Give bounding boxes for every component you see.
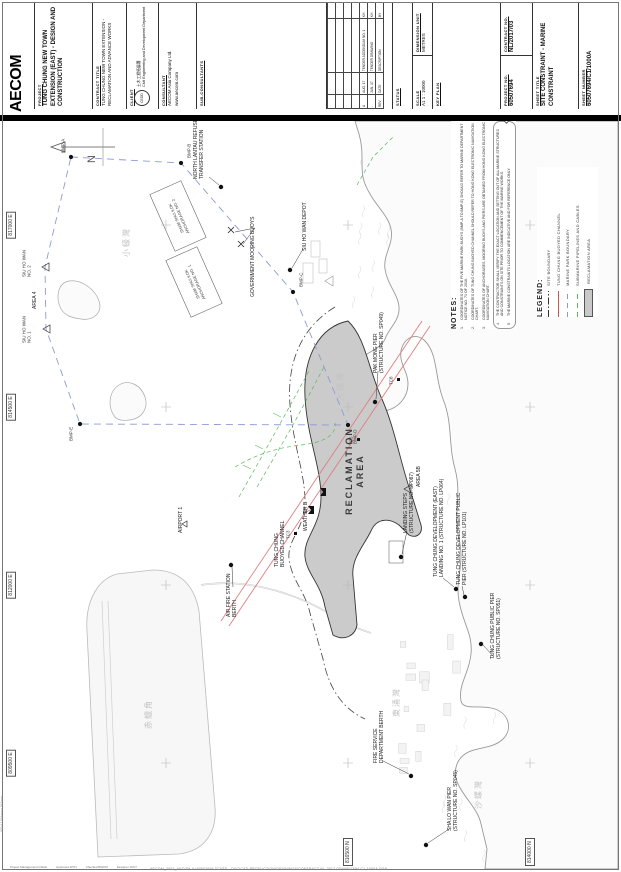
- legend-symbol-red: [558, 291, 559, 317]
- legend-symbol-dashdot: [548, 291, 549, 317]
- aecom-logo: AECOM: [0, 0, 26, 115]
- contract-no-value: NL/2017/03: [509, 5, 517, 52]
- section-consultant: CONSULTANT AECOM Asia Company Ltd. www.a…: [158, 2, 196, 109]
- sheet-title-label: SHEET TITLE: [535, 5, 540, 106]
- scale-label: SCALE: [415, 59, 420, 106]
- legend-symbol-green: [577, 291, 578, 317]
- consultant-value: AECOM Asia Company Ltd.: [167, 5, 173, 106]
- status-label: STATUS: [395, 5, 400, 106]
- project-label: PROJECT: [37, 5, 42, 106]
- label-marker-tc3: TC3: [285, 530, 290, 539]
- cedd-logo: CEDD: [134, 90, 150, 106]
- project-value: TUNG CHUNG NEW TOWN EXTENSION (EAST) - D…: [43, 5, 66, 106]
- grid-label-easting: 809500 E: [6, 749, 16, 776]
- consultant-url: www.aecom.com: [174, 5, 180, 106]
- grid-label-easting: 812000 E: [6, 571, 16, 598]
- grid-label-easting: 817000 E: [6, 211, 16, 238]
- label-area-4: AREA 4: [32, 291, 38, 309]
- label-pak-mong-pier: PAK MONG PIER (STRUCTURE NO. SP049): [373, 312, 385, 373]
- note-item: 4.THE CONTRACTOR SHALL VERIFY THE EXACT …: [496, 125, 505, 325]
- label-marker-tc5: TC5: [348, 436, 353, 445]
- section-project: PROJECT TUNG CHUNG NEW TOWN EXTENSION (E…: [34, 2, 92, 109]
- label-siu-ho-wan-depot: SIU HO WAN DEPOT: [302, 202, 308, 251]
- legend-item: SUBMARINE PIPELINES AND CABLES: [575, 167, 580, 317]
- pipeline-ticks: [243, 413, 281, 469]
- contract-title-label: CONTRACT TITLE: [95, 5, 100, 106]
- note-item: 2.COORDINATES OF TUNG CHUNG BUOYED CHANN…: [471, 121, 480, 329]
- label-siu-ho-wan-cn: 小蠔灣: [122, 227, 132, 257]
- contract-title-value: TUNG CHUNG NEW TOWN EXTENSION - RECLAMAT…: [101, 5, 113, 106]
- label-tung-chung-buoyed-channel: TUNG CHUNG BUOYED CHANNEL: [274, 521, 286, 567]
- legend-heading: LEGEND:: [537, 167, 544, 317]
- label-landing-steps: LANDING STEPS (STRUCTURE NO. SP087): [403, 472, 415, 533]
- label-government-mooring-buoys: GOVERNMENT MOORING BUOYS: [250, 217, 256, 297]
- section-numbers: PROJECT NO. 60507694 CONTRACT NO. NL/201…: [500, 2, 532, 109]
- section-status: STATUS: [392, 2, 412, 109]
- revision-table: AAUG. 17TENDER ADDENDUM NO. 1KH-JUN. 17T…: [327, 2, 384, 109]
- section-revisions: AAUG. 17TENDER ADDENDUM NO. 1KH-JUN. 17T…: [326, 2, 392, 109]
- label-buoy-bmp-a: BMP-A: [60, 139, 65, 153]
- approval-stamp: Project Management Initials: [10, 865, 47, 869]
- seawall-structure: [389, 541, 403, 563]
- legend-item: TUNG CHUNG BUOYED CHANNEL: [556, 167, 561, 317]
- label-tung-chung-wan-cn: 東涌灣: [392, 687, 402, 717]
- section-sheet-number: SHEET NUMBER 60507694/C1/1000A: [578, 2, 618, 109]
- drawing-sheet: N NORTH LANTAU REFUSE TRANSFER STATIONGO…: [0, 0, 621, 872]
- svg-text:N: N: [86, 155, 98, 163]
- section-sheet-title: SHEET TITLE SITE CONSTRAINT - MARINE CON…: [532, 2, 578, 109]
- notes-block: NOTES: 1.COORDINATES OF THE FIVE MARINE …: [451, 121, 516, 329]
- legend-item: MARINE PARK BOUNDARY: [565, 167, 570, 317]
- approvals-row: Project Management InitialsApproved WYNC…: [10, 865, 137, 869]
- note-item: 5.THE MARINE CONSTRAINTS LOCATION ARE IN…: [507, 125, 511, 325]
- approval-stamp: Designer JKKT: [117, 865, 137, 869]
- label-buoy-bmp-e: BMP-E: [68, 427, 73, 441]
- grid-label-easting: 814500 E: [6, 393, 16, 420]
- label-siu-ho-wan-intake-2: SIU HO WAN NO. 2: [22, 250, 33, 277]
- project-no-value: 60507694: [509, 59, 517, 106]
- sheet-number-value: 60507694/C1/1000A: [587, 5, 595, 106]
- scale-value: A1 1 : 10000: [421, 59, 427, 106]
- legend-item: RECLAMATION AREA: [584, 167, 593, 317]
- legend-list: SITE BOUNDARYTUNG CHUNG BUOYED CHANNELMA…: [546, 167, 593, 317]
- rotated-sheet: N NORTH LANTAU REFUSE TRANSFER STATIONGO…: [0, 0, 621, 872]
- key-plan-label: KEY PLAN: [435, 5, 440, 106]
- notes-heading: NOTES:: [451, 121, 458, 329]
- grid-label-northing: 814000 N: [525, 838, 535, 866]
- sheet-number-label: SHEET NUMBER: [581, 5, 586, 106]
- legend-item: SITE BOUNDARY: [546, 167, 551, 317]
- section-scale-unit: SCALE A1 1 : 10000 DIMENSION UNIT METRES: [412, 2, 432, 109]
- sub-consultants-label: SUB-CONSULTANTS: [199, 5, 204, 106]
- label-sha-lo-wan-pier: SHA LO WAN PIER (STRUCTURE NO. SP045): [447, 770, 459, 831]
- note-item: 3.COORDINATES OF ANCHORAGES, MOORING BUO…: [482, 121, 491, 329]
- note-item: 1.COORDINATES OF THE FIVE MARINE PARK BU…: [460, 121, 469, 329]
- sheet-title-value: SITE CONSTRAINT - MARINE CONSTRAINT: [541, 5, 556, 106]
- section-contract-title: CONTRACT TITLE TUNG CHUNG NEW TOWN EXTEN…: [92, 2, 126, 109]
- label-tc-public-pier: TUNG CHUNG PUBLIC PIER (STRUCTURE NO. SP…: [490, 593, 502, 659]
- brothers-islands: [58, 281, 146, 421]
- legend-block: LEGEND: SITE BOUNDARYTUNG CHUNG BUOYED C…: [537, 167, 598, 317]
- notes-revision-cloud: A 4.THE CONTRACTOR SHALL VERIFY THE EXAC…: [493, 121, 516, 329]
- label-airport-1: AIRPORT 1: [178, 507, 184, 533]
- label-chek-lap-kok-cn: 赤鱲角: [144, 699, 154, 729]
- label-marker-tc8: TC8: [388, 376, 393, 385]
- sheet-size-note: ISO A1 594mm x 841mm: [0, 796, 4, 832]
- mooring-buoy-markers: [228, 227, 244, 247]
- consultant-label: CONSULTANT: [161, 5, 166, 106]
- label-weather-b: WEATHER B: [303, 502, 309, 531]
- section-sub-consultants: SUB-CONSULTANTS: [196, 2, 232, 109]
- notes-list: 1.COORDINATES OF THE FIVE MARINE PARK BU…: [460, 121, 491, 329]
- map-linework: N: [3, 121, 618, 869]
- section-client: CLIENT CEDD 土木工程拓展署 Civil Engineering an…: [126, 2, 158, 109]
- label-sha-lo-wan-cn: 沙螺灣: [474, 779, 484, 809]
- approval-stamp: Approved WYN: [56, 865, 77, 869]
- legend-symbol-grey: [584, 289, 593, 317]
- label-siu-ho-wan-intake-1: SIU HO WAN NO. 1: [22, 316, 33, 343]
- plot-path-stamp: AECOM_2002_AECOM X:\60507694 TCNTE - D&C…: [150, 867, 387, 871]
- title-block: AECOM PROJECT TUNG CHUNG NEW TOWN EXTENS…: [0, 0, 621, 121]
- project-no-label: PROJECT NO.: [503, 59, 508, 106]
- map-area: N NORTH LANTAU REFUSE TRANSFER STATIONGO…: [3, 121, 618, 869]
- label-area-5b: AREA 5B: [416, 466, 422, 487]
- section-key-plan: KEY PLAN: [432, 2, 500, 109]
- dimension-unit-value: METRES: [421, 5, 427, 52]
- label-buoy-bmp-b: BMP-B: [186, 144, 191, 158]
- revision-triangle-marker: A: [501, 121, 514, 124]
- dimension-unit-label: DIMENSION UNIT: [415, 5, 420, 52]
- label-tc-development-public-pier: TUNG CHUNG DEVELOPMENT PUBLIC PIER (STRU…: [456, 493, 468, 585]
- anchorage-boxes: [150, 181, 222, 317]
- label-tce-landing-no-1: TUNG CHUNG DEVELOPMENT (EAST) LANDING NO…: [433, 479, 445, 577]
- contract-no-label: CONTRACT NO.: [503, 5, 508, 52]
- legend-symbol-blue: [567, 291, 568, 317]
- label-fire-service-berth: FIRE SERVICE DEPARTMENT BERTH: [373, 711, 385, 763]
- approval-stamp: Checked BWKM: [86, 865, 108, 869]
- client-org: Civil Engineering and Development Depart…: [142, 7, 147, 87]
- label-refuse-transfer-station: NORTH LANTAU REFUSE TRANSFER STATION: [193, 121, 205, 179]
- label-air-fire-station-berth: AIR FIRE STATION BERTH: [226, 574, 238, 617]
- grid-label-northing: 816500 N: [343, 838, 353, 866]
- label-buoy-bmp-c: BMP-C: [298, 273, 303, 288]
- label-tai-ho-wan-cn: 大蠔灣: [336, 371, 346, 401]
- intake-markers: [42, 263, 50, 333]
